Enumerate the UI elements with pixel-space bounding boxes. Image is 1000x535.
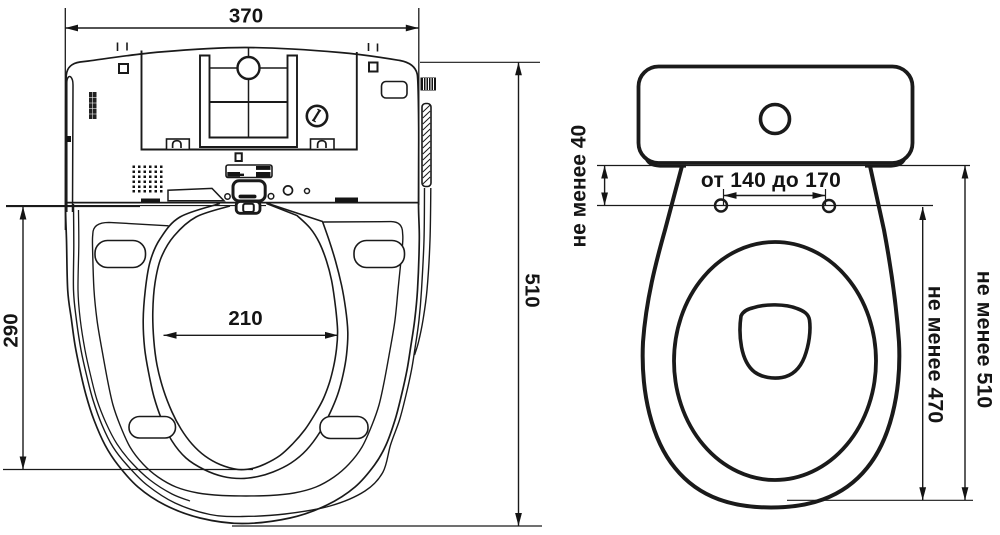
svg-text:не менее 470: не менее 470 [924, 286, 948, 424]
svg-text:не менее 510: не менее 510 [973, 271, 997, 409]
svg-text:210: 210 [228, 307, 262, 330]
svg-text:не менее 40: не менее 40 [568, 125, 591, 248]
svg-text:от 140 до 170: от 140 до 170 [701, 169, 841, 192]
svg-text:510: 510 [521, 273, 544, 307]
svg-text:370: 370 [229, 5, 263, 28]
svg-text:290: 290 [0, 313, 23, 347]
